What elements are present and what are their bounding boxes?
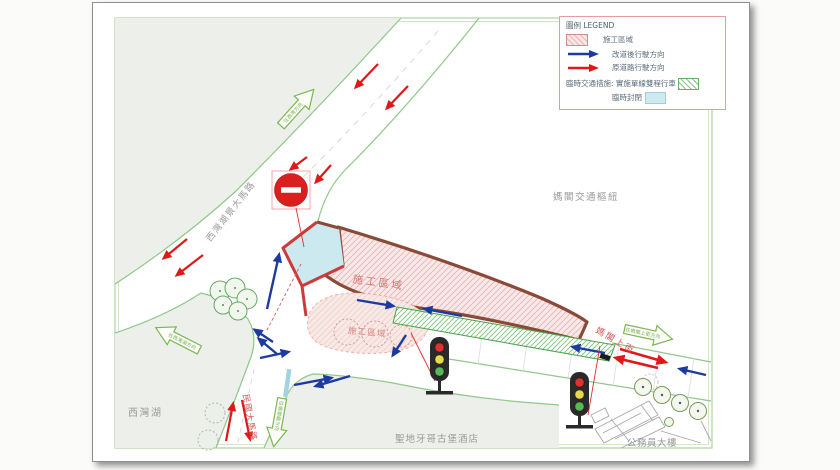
label-hotel: 聖地牙哥古堡酒店 [395,433,479,445]
legend-item-diverted: 改道後行駛方向 [566,49,719,59]
label-building: 公務員大樓 [627,437,677,449]
construction-hatch-swatch [566,34,588,46]
red-arrow-icon [566,63,600,73]
legend-item-original: 原道路行駛方向 [566,63,719,73]
drawing-sheet: 往西灣方向 往西灣湖方向 往媽閣廟方向 往媽閣上街方向 [92,2,750,462]
legend-item-construction: 施工區域 [566,34,719,46]
legend-item-label: 施工區域 [603,35,633,44]
legend-note-closed-label: 臨時封閉 [612,93,642,102]
legend-title: 圖例 LEGEND [566,21,719,30]
single-lane-hatch-swatch [678,78,699,90]
legend-note-single-lane: 臨時交通措施: 實施單線雙程行車 [566,78,719,90]
legend-note-label: 臨時交通措施: [566,79,614,88]
closed-swatch [645,92,666,104]
legend-note-single-lane-label: 實施單線雙程行車 [616,79,676,88]
label-lake: 西灣湖 [128,407,163,419]
blue-arrow-icon [566,49,600,59]
legend-note-closed: 臨時封閉 [612,92,719,104]
label-hub: 媽閣交通樞紐 [553,191,619,203]
legend-item-label: 改道後行駛方向 [612,50,665,59]
legend-item-label: 原道路行駛方向 [612,63,665,72]
legend-box: 圖例 LEGEND 施工區域 改道後行駛方向 原道路行駛方向 臨時交通措施: 實… [559,16,726,110]
